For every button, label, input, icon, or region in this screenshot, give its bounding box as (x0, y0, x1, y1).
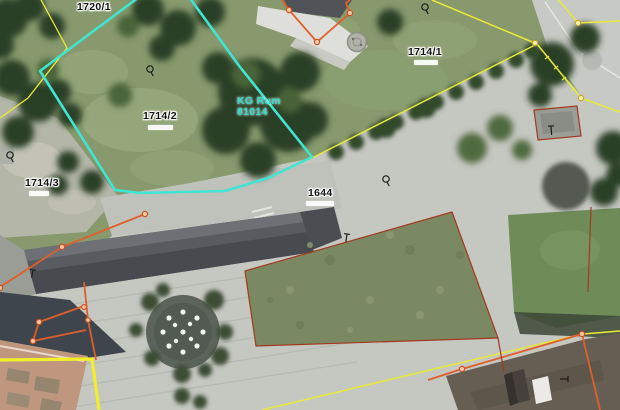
kg-region-code: 81014 (237, 107, 281, 118)
utility-structure (534, 106, 581, 140)
parcel-label-1644[interactable]: 1644 (308, 187, 333, 199)
parcel-label-1714-1[interactable]: 1714/1 (408, 46, 442, 58)
kg-region-label: KG Rum 81014 (237, 96, 281, 118)
right-lawn (508, 208, 620, 338)
garden-circle-feature (348, 33, 367, 52)
parcel-label-1714-2[interactable]: 1714/2 (143, 110, 177, 122)
parcel-area-sublabel (29, 191, 49, 196)
parcel-label-1714-3[interactable]: 1714/3 (25, 177, 59, 189)
map-viewport[interactable]: 1720/1 1714/1 1714/2 1714/3 1644 KG Rum … (0, 0, 620, 410)
parcel-label-1720-1[interactable]: 1720/1 (77, 1, 111, 13)
parcel-area-sublabel (414, 60, 438, 65)
parcel-area-sublabel (148, 125, 173, 130)
parcel-area-sublabel (306, 201, 334, 206)
